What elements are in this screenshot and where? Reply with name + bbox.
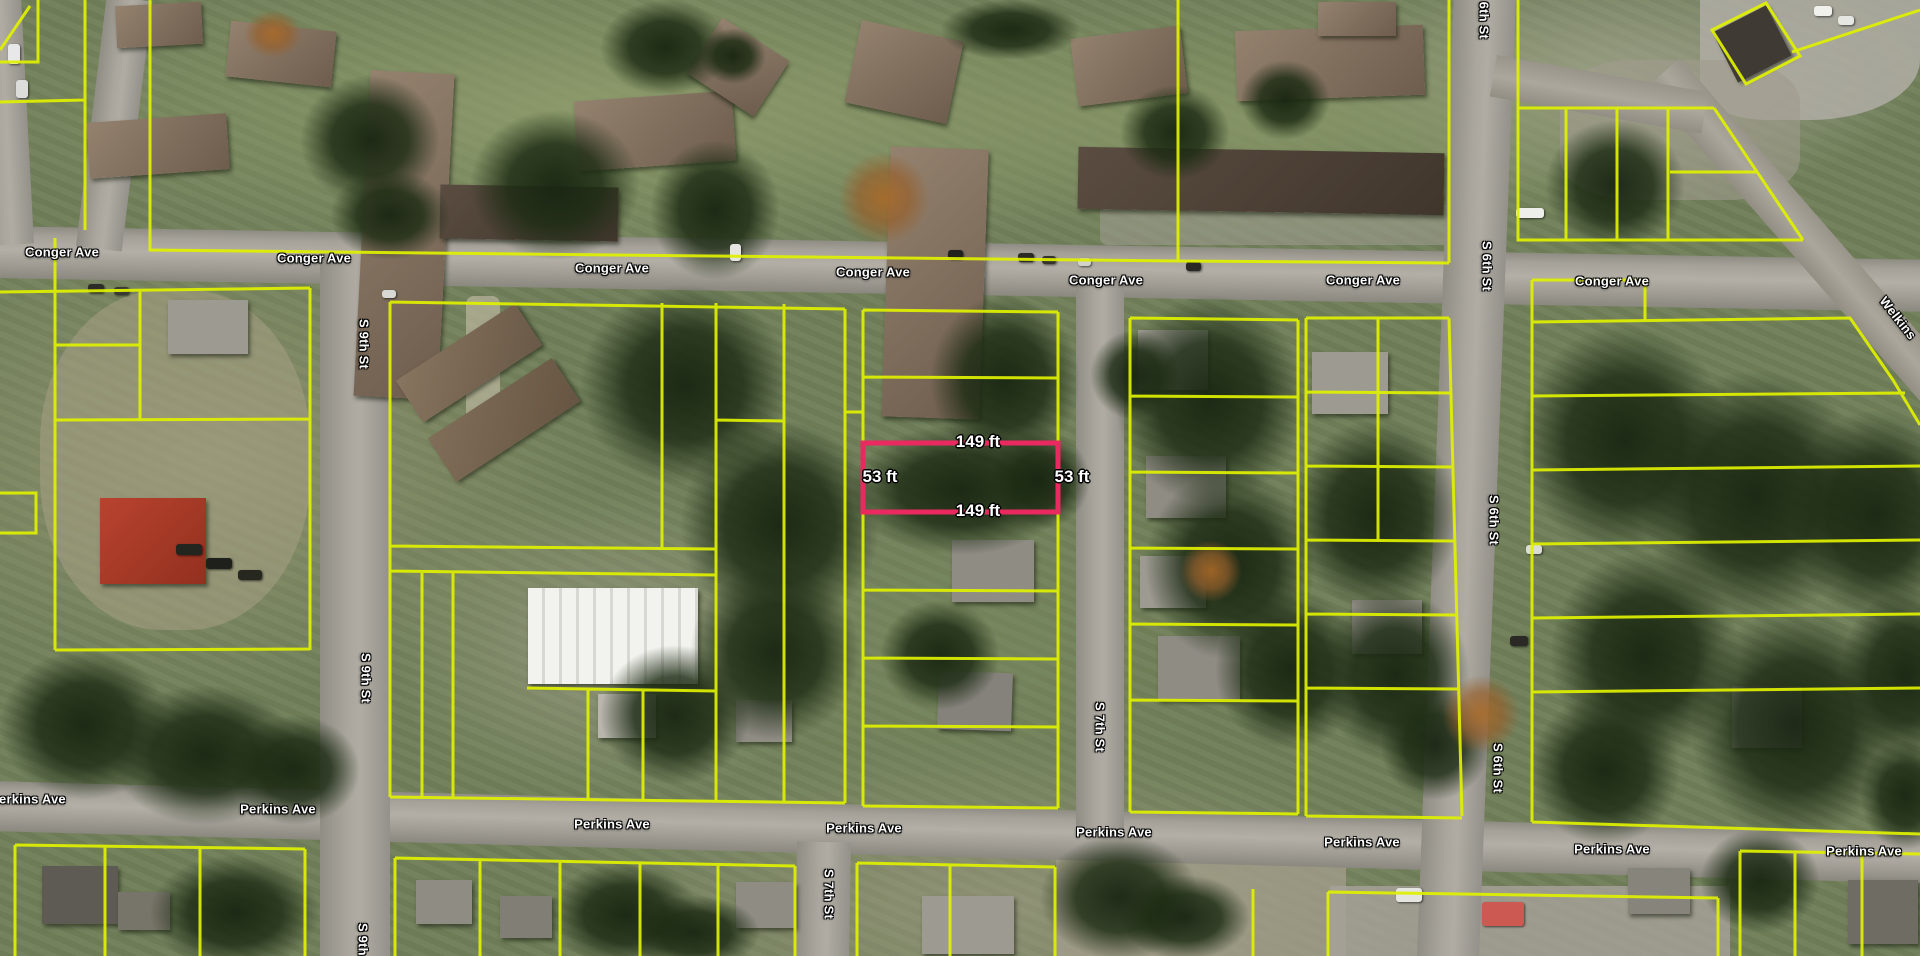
street-label: Perkins Ave xyxy=(574,817,650,832)
parcel-dimension-label: 149 ft xyxy=(956,501,1000,521)
street-label: Conger Ave xyxy=(1069,273,1143,288)
street-label: S 9th St xyxy=(357,319,372,369)
parcel-dimension-label: 149 ft xyxy=(956,432,1000,452)
street-label: Conger Ave xyxy=(277,251,351,266)
street-label: Welkins xyxy=(1877,294,1920,343)
map-labels: Conger AveConger AveConger AveConger Ave… xyxy=(0,0,1920,956)
street-label: Perkins Ave xyxy=(826,821,902,836)
street-label: Conger Ave xyxy=(575,261,649,276)
street-label: Perkins Ave xyxy=(1574,842,1650,857)
parcel-dimension-label: 53 ft xyxy=(1055,467,1090,487)
satellite-map[interactable]: Conger AveConger AveConger AveConger Ave… xyxy=(0,0,1920,956)
parcel-dimension-label: 53 ft xyxy=(863,467,898,487)
street-label: S 7th St xyxy=(822,869,837,919)
street-label: Perkins Ave xyxy=(0,792,66,807)
street-label: S 6th St xyxy=(1480,241,1495,291)
street-label: S 6th St xyxy=(1487,495,1502,545)
street-label: Perkins Ave xyxy=(240,802,316,817)
street-label: Perkins Ave xyxy=(1076,825,1152,840)
street-label: S 7th St xyxy=(1093,702,1108,752)
street-label: Conger Ave xyxy=(1575,274,1649,289)
street-label: Perkins Ave xyxy=(1826,844,1902,859)
street-label: Perkins Ave xyxy=(1324,835,1400,850)
street-label: S 9th St xyxy=(359,653,374,703)
street-label: S 9th St xyxy=(356,923,371,956)
street-label: S 6th St xyxy=(1477,0,1492,39)
street-label: Conger Ave xyxy=(836,265,910,280)
street-label: S 6th St xyxy=(1491,743,1506,793)
street-label: Conger Ave xyxy=(1326,273,1400,288)
street-label: Conger Ave xyxy=(25,245,99,260)
